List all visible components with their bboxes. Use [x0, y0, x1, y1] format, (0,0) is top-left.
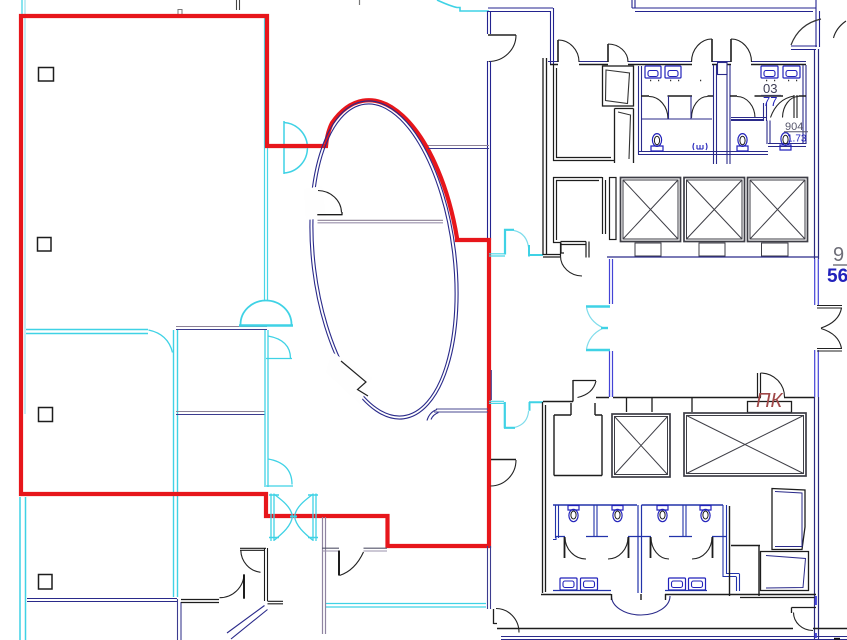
svg-text:1.73: 1.73 — [787, 134, 807, 145]
svg-text:77: 77 — [763, 94, 777, 109]
svg-text:ПК: ПК — [756, 390, 783, 412]
svg-text:56: 56 — [827, 266, 847, 287]
svg-text:904: 904 — [785, 121, 803, 133]
svg-text:9: 9 — [833, 244, 844, 266]
